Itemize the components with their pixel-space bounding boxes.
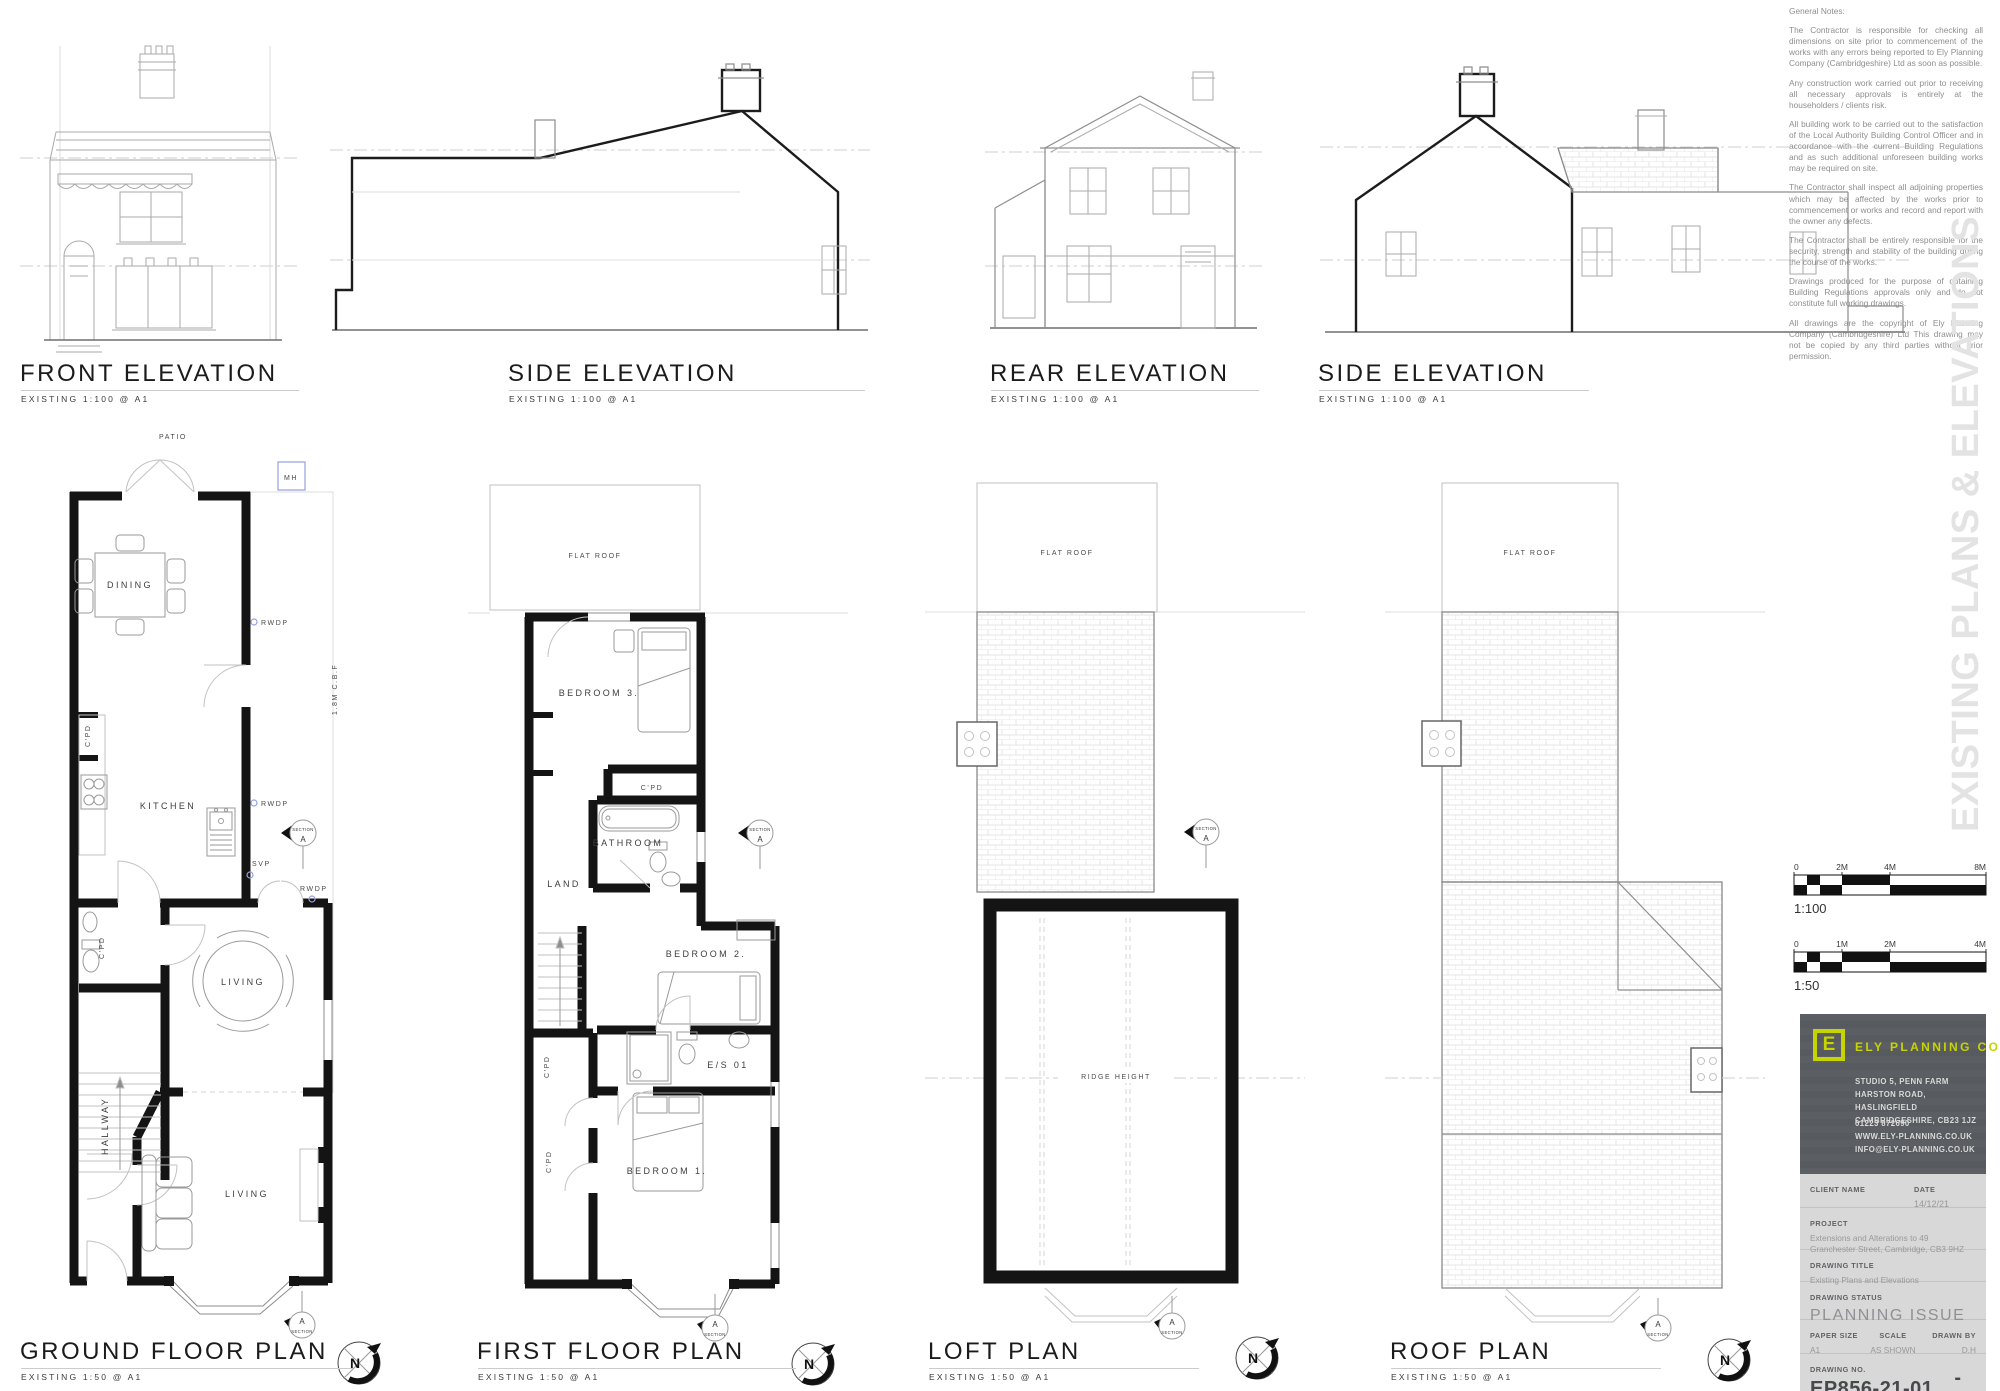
roof-plan-title: ROOF PLAN <box>1390 1338 1551 1366</box>
roof-rooflight-right <box>1691 1048 1722 1092</box>
wc-cupboard-label: C'PD <box>99 936 106 959</box>
date-label: DATE <box>1914 1185 1935 1194</box>
revision-value: - <box>1940 1367 1976 1390</box>
front-upper-window <box>116 192 186 244</box>
loft-rooflight <box>957 722 997 766</box>
svg-text:N: N <box>804 1356 814 1372</box>
svg-text:1M: 1M <box>1836 939 1848 949</box>
svg-text:2M: 2M <box>1884 939 1896 949</box>
svg-text:0: 0 <box>1794 939 1799 949</box>
side2-profile <box>1356 116 1572 332</box>
wc-fixtures <box>82 912 100 972</box>
front-roof <box>50 132 276 160</box>
rear-elevation-title-text: REAR ELEVATION <box>990 360 1230 387</box>
living-front-label: LIVING <box>225 1189 269 1199</box>
drawing-status-label: DRAWING STATUS <box>1810 1293 1882 1302</box>
address-line: HARSTON ROAD, HASLINGFIELD <box>1855 1089 1986 1115</box>
drawing-status-row: DRAWING STATUS PLANNING ISSUE <box>1800 1282 1986 1320</box>
drawing-no-value: EP856-21-01 <box>1810 1378 1940 1391</box>
patio-doors <box>126 460 194 492</box>
svg-text:N: N <box>1720 1352 1730 1368</box>
svg-text:A: A <box>1169 1318 1175 1327</box>
first-floor-plan-drawing: FLAT ROOF <box>468 478 848 1391</box>
side-elevation-2-caption: EXISTING 1:100 @ A1 <box>1319 394 1447 404</box>
side-elevation-1-title: SIDE ELEVATION <box>508 360 737 388</box>
side2-chimney-rear <box>1635 110 1667 150</box>
ground-floor-plan-drawing: MH PATIO <box>60 425 440 1385</box>
side-elevation-1-title-text: SIDE ELEVATION <box>508 360 737 387</box>
drawn-by-label: DRAWN BY <box>1932 1331 1976 1340</box>
contact-email: INFO@ELY-PLANNING.CO.UK <box>1855 1144 1975 1157</box>
drawing-no-label: DRAWING NO. <box>1810 1365 1866 1374</box>
gf-windows <box>170 1000 332 1314</box>
client-date-row: CLIENT NAME DATE 14/12/21 <box>1800 1174 1986 1208</box>
roof-flat-roof-outline <box>1442 483 1618 612</box>
front-elevation-caption: EXISTING 1:100 @ A1 <box>21 394 149 404</box>
ground-floor-plan-title: GROUND FLOOR PLAN <box>20 1338 328 1366</box>
svg-text:N: N <box>1248 1350 1258 1366</box>
sheet-side-title-text: EXISTING PLANS & ELEVATIONS <box>1945 216 1988 832</box>
client-name-label: CLIENT NAME <box>1810 1185 1865 1194</box>
ff-windows <box>588 613 779 1317</box>
project-label: PROJECT <box>1810 1219 1848 1228</box>
drawing-sheet: MH PATIO <box>0 0 2000 1391</box>
ff-flat-roof-outline <box>490 485 700 610</box>
scale-bar-1-100: 0 2M 4M 8M 1:100 <box>1792 861 1992 923</box>
svg-text:SECTION: SECTION <box>1195 826 1216 831</box>
bed-2 <box>658 920 775 1024</box>
roof-plan-caption: EXISTING 1:50 @ A1 <box>1391 1372 1512 1382</box>
gf-service-labels: RWDP RWDP SVP RWDP <box>247 619 328 902</box>
roof-rooflight-left <box>1422 721 1461 766</box>
dining-label: DINING <box>107 580 153 590</box>
svg-text:A: A <box>712 1320 718 1329</box>
front-elevation-title: FRONT ELEVATION <box>20 360 278 388</box>
side-elevation-2-title-text: SIDE ELEVATION <box>1318 360 1547 387</box>
bathroom-label: BATHROOM <box>593 838 664 848</box>
gf-section-marker-side: SECTION A <box>281 820 316 869</box>
side1-stack <box>535 120 555 158</box>
ground-floor-plan-title-text: GROUND FLOOR PLAN <box>20 1338 328 1365</box>
living-back-label: LIVING <box>221 977 265 987</box>
note-paragraph: Any construction work carried out prior … <box>1789 78 1983 111</box>
first-floor-plan-title-text: FIRST FLOOR PLAN <box>477 1338 745 1365</box>
svg-text:8M: 8M <box>1974 862 1986 872</box>
front-elevation-drawing <box>20 40 300 358</box>
roof-section-marker-bottom: A SECTION <box>1640 1298 1671 1341</box>
roof-plan-drawing: FLAT ROOF A SECTION N <box>1385 470 1765 1390</box>
front-canopy <box>58 174 192 189</box>
kitchen-units <box>79 715 235 856</box>
roof-rear-slope <box>1442 612 1618 882</box>
fence-label: 1.8M C.B.F <box>332 664 339 715</box>
scale-bar-1-50: 0 1M 2M 4M 1:50 <box>1792 938 1992 1000</box>
roof-bay <box>1505 1288 1640 1322</box>
ff-cupboard-label-2: C'PD <box>544 1055 551 1078</box>
company-contact: 01223 872690 WWW.ELY-PLANNING.CO.UK INFO… <box>1855 1118 1975 1157</box>
svg-text:4M: 4M <box>1974 939 1986 949</box>
roof-main <box>1442 882 1722 1288</box>
drawing-no-row: DRAWING NO. EP856-21-01 - <box>1800 1354 1986 1390</box>
kitchen-label: KITCHEN <box>140 801 196 811</box>
ff-stairs <box>538 933 582 1026</box>
patio-label: PATIO <box>159 434 187 441</box>
gf-section-marker-bottom: A SECTION <box>284 1291 315 1338</box>
svg-text:SECTION: SECTION <box>292 827 313 832</box>
bedroom1-label: BEDROOM 1. <box>627 1166 708 1176</box>
loft-section-marker-bottom: A SECTION <box>1154 1296 1185 1339</box>
front-door <box>64 241 94 340</box>
front-bay-window <box>112 258 216 330</box>
drawing-title-row: DRAWING TITLE Existing Plans and Elevati… <box>1800 1250 1986 1282</box>
ensuite-fixtures <box>627 1032 749 1084</box>
scale-label: SCALE <box>1879 1331 1906 1340</box>
side-elevation-1-caption: EXISTING 1:100 @ A1 <box>509 394 637 404</box>
sheet-side-title: EXISTING PLANS & ELEVATIONS <box>1946 240 1992 832</box>
bed-1 <box>633 1093 703 1191</box>
loft-bay <box>1045 1288 1177 1322</box>
svg-text:A: A <box>757 835 763 844</box>
svg-text:SECTION: SECTION <box>704 1332 725 1337</box>
svg-text:A: A <box>299 1317 305 1326</box>
contact-website: WWW.ELY-PLANNING.CO.UK <box>1855 1131 1975 1144</box>
svg-text:0: 0 <box>1794 862 1799 872</box>
side2-gable-window <box>1386 232 1416 276</box>
svg-text:1:50: 1:50 <box>1794 978 1819 993</box>
front-chimney <box>138 46 176 98</box>
loft-plan-title-text: LOFT PLAN <box>928 1338 1081 1365</box>
ff-north-arrow: N <box>792 1343 835 1385</box>
roof-flat-roof-label: FLAT ROOF <box>1503 550 1556 557</box>
ff-cupboard-label-3: C'PD <box>546 1150 553 1173</box>
ff-cupboard-label-1: C'PD <box>641 785 664 792</box>
rear-elevation-caption: EXISTING 1:100 @ A1 <box>991 394 1119 404</box>
loft-north-arrow: N <box>1236 1337 1279 1379</box>
roof-north-arrow: N <box>1708 1339 1751 1381</box>
bed-3 <box>614 628 690 732</box>
svg-text:RWDP: RWDP <box>261 620 289 627</box>
rear-extension <box>995 180 1045 328</box>
size-scale-drawnby-row: PAPER SIZE A1 SCALE AS SHOWN DRAWN BY D.… <box>1800 1320 1986 1354</box>
svg-text:SECTION: SECTION <box>749 827 770 832</box>
rear-elevation-drawing <box>985 56 1265 356</box>
gf-cupboard-label: C'PD <box>85 724 92 747</box>
svg-text:SECTION: SECTION <box>1647 1332 1668 1337</box>
title-block-fields: CLIENT NAME DATE 14/12/21 PROJECT Extens… <box>1800 1174 1986 1391</box>
side1-window <box>822 246 846 294</box>
paper-size-label: PAPER SIZE <box>1810 1331 1858 1340</box>
svg-text:4M: 4M <box>1884 862 1896 872</box>
general-notes-title: General Notes: <box>1789 6 1983 17</box>
loft-plan-caption: EXISTING 1:50 @ A1 <box>929 1372 1050 1382</box>
loft-room-walls <box>990 905 1232 1277</box>
ff-section-marker-side: SECTION A <box>738 820 773 869</box>
side-elevation-2-title: SIDE ELEVATION <box>1318 360 1547 388</box>
loft-plan-drawing: FLAT ROOF RIDGE HEIGHT SECTION A A SECTI… <box>925 470 1305 1390</box>
first-floor-plan-caption: EXISTING 1:50 @ A1 <box>478 1372 599 1382</box>
svg-text:RWDP: RWDP <box>261 801 289 808</box>
svg-text:A: A <box>1203 834 1209 843</box>
side2-rear-roof <box>1558 148 1718 192</box>
note-paragraph: The Contractor is responsible for checki… <box>1789 25 1983 69</box>
svg-text:RWDP: RWDP <box>300 886 328 893</box>
landing-label: LAND <box>547 879 581 889</box>
loft-section-marker-side: SECTION A <box>1184 819 1219 868</box>
address-line: STUDIO 5, PENN FARM <box>1855 1076 1986 1089</box>
svg-text:SECTION: SECTION <box>291 1329 312 1334</box>
svg-text:2M: 2M <box>1836 862 1848 872</box>
svg-text:1:100: 1:100 <box>1794 901 1827 916</box>
ff-flat-roof-label: FLAT ROOF <box>568 553 621 560</box>
ridge-height-label: RIDGE HEIGHT <box>1081 1074 1151 1081</box>
side1-chimney <box>718 64 764 111</box>
svg-text:A: A <box>300 835 306 844</box>
side-elevation-1-drawing <box>330 58 870 350</box>
svg-text:SVP: SVP <box>252 861 271 868</box>
ensuite-label: E/S 01 <box>707 1060 748 1070</box>
loft-plan-title: LOFT PLAN <box>928 1338 1081 1366</box>
company-name: ELY PLANNING CO. <box>1855 1040 2000 1054</box>
hallway-label: HALLWAY <box>100 1097 110 1155</box>
svg-text:A: A <box>1655 1320 1661 1329</box>
roof-plan-title-text: ROOF PLAN <box>1390 1338 1551 1365</box>
title-block: E ELY PLANNING CO. STUDIO 5, PENN FARM H… <box>1800 1014 1986 1391</box>
svg-text:SECTION: SECTION <box>1161 1330 1182 1335</box>
gf-north-arrow: N <box>338 1342 381 1384</box>
bedroom3-label: BEDROOM 3. <box>559 688 640 698</box>
contact-phone: 01223 872690 <box>1855 1118 1975 1131</box>
ground-floor-plan-caption: EXISTING 1:50 @ A1 <box>21 1372 142 1382</box>
loft-rear-roof <box>977 612 1154 892</box>
side1-profile <box>336 111 838 330</box>
drawing-title-label: DRAWING TITLE <box>1810 1261 1874 1270</box>
svg-text:MH: MH <box>284 475 298 482</box>
loft-flat-roof-label: FLAT ROOF <box>1040 550 1093 557</box>
project-row: PROJECT Extensions and Alterations to 49… <box>1800 1208 1986 1250</box>
gf-walls <box>70 492 328 1283</box>
note-paragraph: All building work to be carried out to t… <box>1789 119 1983 175</box>
company-logo: E <box>1813 1029 1845 1061</box>
front-elevation-title-text: FRONT ELEVATION <box>20 360 278 387</box>
rear-windows <box>1067 168 1215 328</box>
loft-flat-roof-outline <box>977 483 1157 612</box>
manhole: MH <box>278 462 305 490</box>
side2-chimney-main <box>1456 67 1498 116</box>
first-floor-plan-title: FIRST FLOOR PLAN <box>477 1338 745 1366</box>
rear-elevation-title: REAR ELEVATION <box>990 360 1230 388</box>
bedroom2-label: BEDROOM 2. <box>666 949 747 959</box>
title-block-header: E ELY PLANNING CO. STUDIO 5, PENN FARM H… <box>1800 1014 1986 1174</box>
gf-door-swings <box>87 665 303 1281</box>
